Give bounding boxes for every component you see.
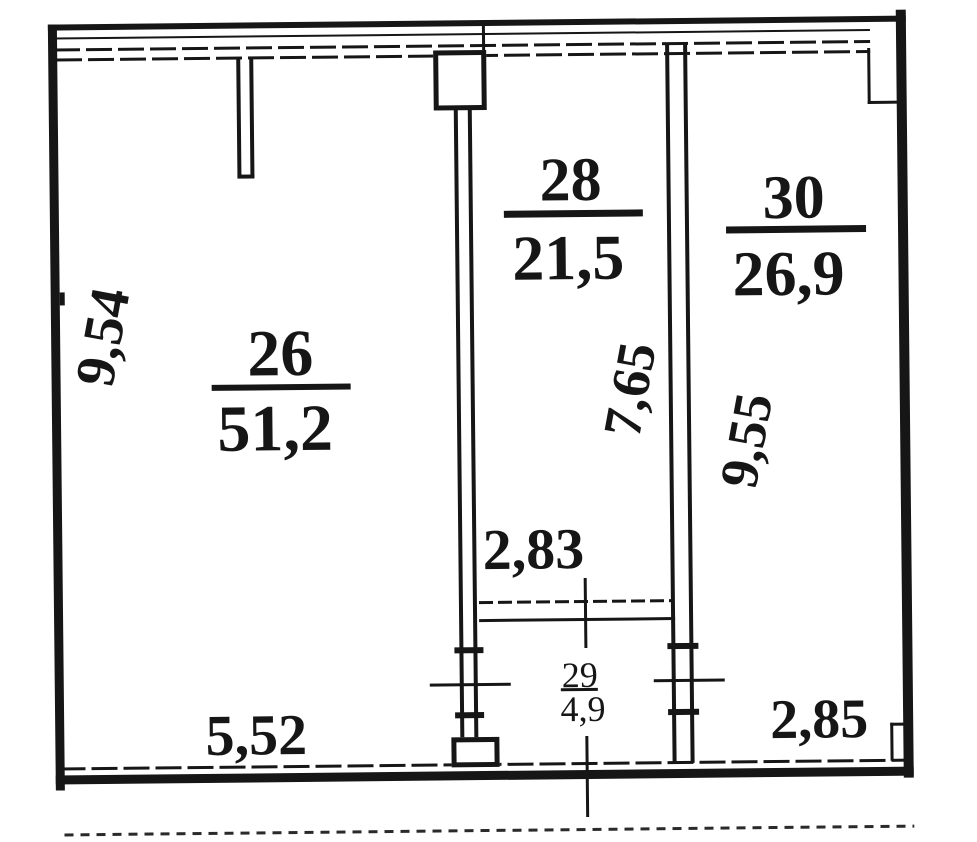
partition-28-29-bottom-line xyxy=(479,617,675,622)
floor-plan: 26 51,2 28 21,5 30 26,9 29 4,9 9,54 7,65… xyxy=(0,0,977,842)
partition-28-30-joint-lower xyxy=(668,709,699,715)
pier-block-top xyxy=(433,50,487,111)
partition-28-30-joint-upper xyxy=(667,643,698,649)
dim-room28-height: 7,65 xyxy=(595,338,665,441)
partition-28-30-left-line xyxy=(665,44,677,763)
partition-26-28-joint-upper xyxy=(454,647,483,653)
dim-bottom-right-width: 2,85 xyxy=(770,691,869,748)
wall-stub-right-line xyxy=(249,58,254,177)
partition-28-30-right-line xyxy=(683,44,695,763)
room-28-underline xyxy=(504,209,643,217)
wall-right-top-notch-vertical xyxy=(867,48,871,104)
partition-26-28-left-line xyxy=(454,108,465,740)
dim-opening-width: 2,83 xyxy=(482,520,584,579)
dim-left-height: 9,54 xyxy=(67,284,140,390)
room-30-area: 26,9 xyxy=(732,241,845,306)
room-30-underline xyxy=(726,225,866,233)
room-28-number: 28 xyxy=(539,149,602,212)
partition-28-29-top-line xyxy=(479,599,673,604)
room-26-number: 26 xyxy=(247,321,314,388)
wall-right-top-notch-horizontal xyxy=(868,101,899,104)
room-29-area: 4,9 xyxy=(560,691,605,727)
wall-left xyxy=(48,24,65,790)
wall-right xyxy=(896,10,914,778)
room-26-area: 51,2 xyxy=(217,396,333,463)
wall-top-band-line-2 xyxy=(54,29,870,40)
room-30-number: 30 xyxy=(762,166,825,229)
dim-tick-horizontal-left xyxy=(430,683,511,687)
partition-26-28-joint-lower xyxy=(455,712,484,718)
room-28-area: 21,5 xyxy=(512,226,625,291)
room-26-underline xyxy=(212,383,351,390)
scan-artifact-dashes xyxy=(64,825,914,837)
wall-stub-end-cap xyxy=(237,174,254,178)
dim-tick-vertical-lower xyxy=(585,736,589,817)
wall-stub-left-line xyxy=(236,59,241,178)
dim-tick-vertical-upper xyxy=(584,578,588,648)
pier-block-bottom xyxy=(451,737,499,768)
dim-room30-height: 9,55 xyxy=(711,389,781,492)
dim-bottom-left-width: 5,52 xyxy=(205,706,307,765)
wall-bottom-outer xyxy=(56,767,914,785)
wall-top-outer xyxy=(48,16,906,31)
wall-left-joint-nub xyxy=(60,292,65,305)
partition-26-28-right-line xyxy=(468,108,479,740)
dim-tick-horizontal-right xyxy=(654,679,725,683)
wall-right-bottom-notch-horizontal xyxy=(890,723,905,726)
wall-right-bottom-notch-vertical xyxy=(890,723,893,761)
